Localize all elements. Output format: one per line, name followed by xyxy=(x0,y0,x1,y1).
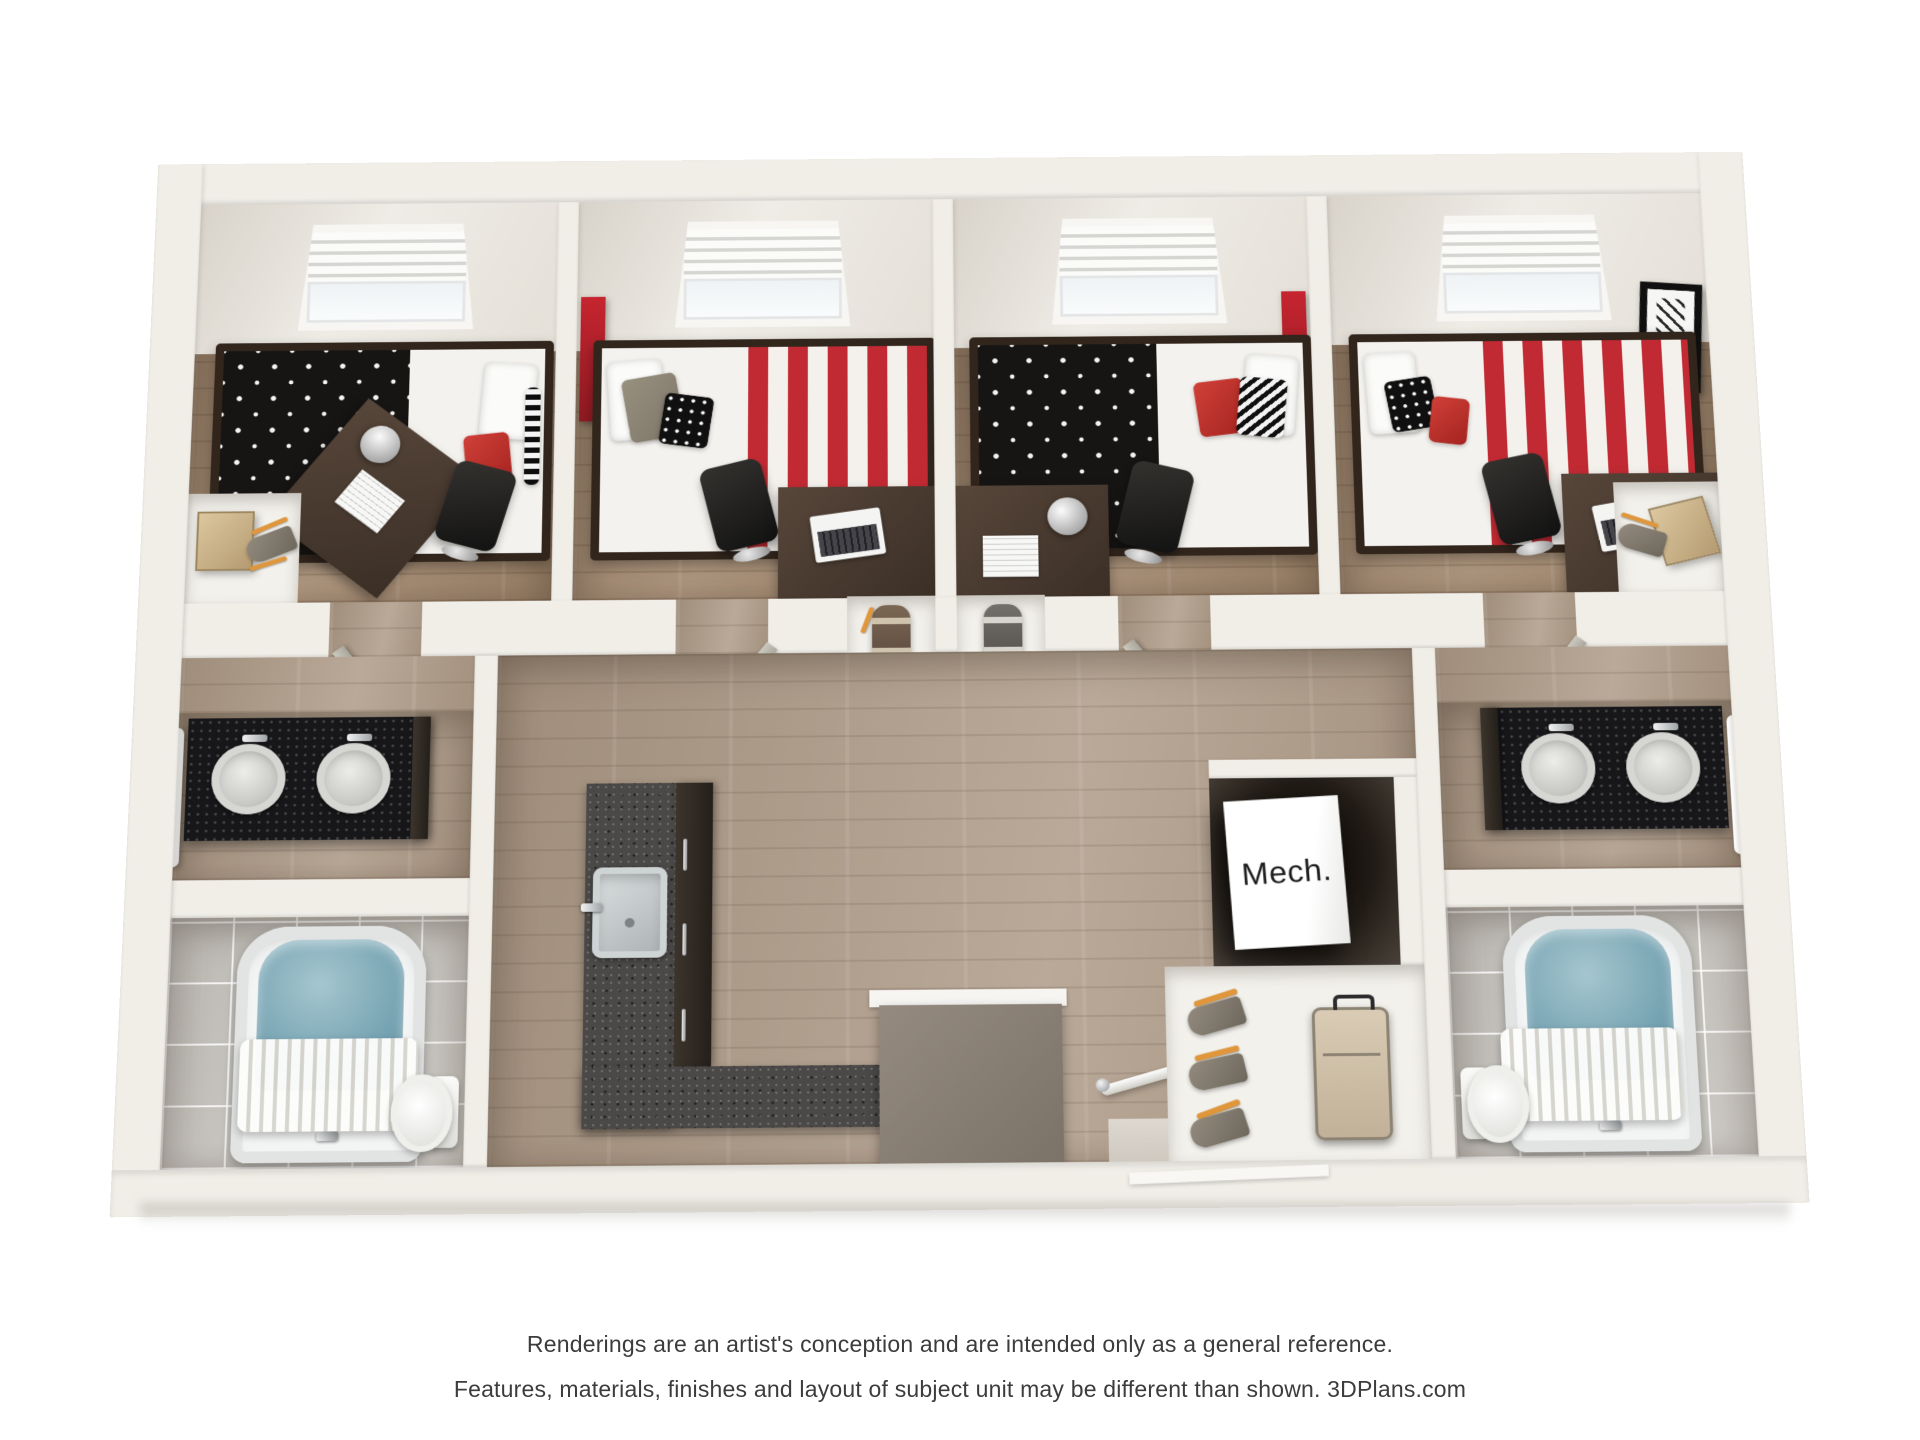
zebra-pillow xyxy=(524,387,541,485)
bedroom-1 xyxy=(184,202,558,603)
vanity-counter-left xyxy=(184,717,431,841)
bedroom-2-desk xyxy=(778,486,936,599)
disclaimer: Renderings are an artist's conception an… xyxy=(0,1322,1920,1412)
bathroom-left xyxy=(160,916,469,1170)
tub-faucet xyxy=(1599,1120,1621,1130)
kitchen-sink xyxy=(592,867,668,958)
window-blinds xyxy=(1441,222,1601,273)
vanity-counter-right xyxy=(1480,706,1729,830)
bedroom-4-closet-nook xyxy=(1613,481,1724,591)
window-blinds xyxy=(684,228,842,279)
desk-lamp xyxy=(352,418,408,470)
bedroom-2-door-opening xyxy=(675,599,768,654)
hallway-left xyxy=(179,656,475,713)
window-blinds xyxy=(1059,225,1218,276)
mech-unit-box: Mech. xyxy=(1223,795,1351,950)
window-glass xyxy=(306,281,465,323)
storage-box xyxy=(195,511,255,571)
dot-pillow xyxy=(658,392,715,449)
cabinet-handle xyxy=(683,839,687,871)
faucet xyxy=(242,735,267,743)
refrigerator xyxy=(879,1004,1064,1164)
laptop xyxy=(809,507,886,563)
mech-closet: Mech. xyxy=(1209,777,1401,966)
bedroom-4 xyxy=(1327,193,1725,594)
faucet xyxy=(1548,724,1574,732)
wall-vanity-bath-right xyxy=(1444,867,1743,907)
bedroom-2-skylight-window xyxy=(675,221,850,328)
sink-left-2 xyxy=(315,743,391,814)
window-glass xyxy=(1060,275,1219,317)
desk-paper xyxy=(334,469,405,533)
sink-right-2 xyxy=(1624,732,1702,803)
faucet xyxy=(1653,723,1679,731)
kitchen-faucet xyxy=(581,903,603,912)
maze-pattern-pillow xyxy=(1236,376,1288,438)
bedroom-4-door-opening xyxy=(1483,592,1578,647)
railing-newel xyxy=(1096,1078,1110,1092)
disclaimer-line1: Renderings are an artist's conception an… xyxy=(0,1322,1920,1367)
bedroom-3-desk xyxy=(955,485,1110,598)
luggage-closet xyxy=(1165,965,1432,1162)
disclaimer-line2: Features, materials, finishes and layout… xyxy=(0,1367,1920,1412)
vanity-room-right xyxy=(1437,700,1741,870)
bedroom-3 xyxy=(953,196,1319,597)
suitcase xyxy=(1312,1007,1394,1141)
floorplan-unit: Mech. xyxy=(110,152,1810,1217)
sink-right-1 xyxy=(1520,733,1597,804)
sink-left-1 xyxy=(210,744,287,815)
wall-bedroom2-3 xyxy=(932,199,956,625)
vanity-cabinet-edge xyxy=(410,717,431,840)
bathroom-right xyxy=(1446,905,1759,1159)
laptop-keyboard xyxy=(817,524,879,557)
cabinet-handle xyxy=(682,1009,686,1042)
bedroom-3-skylight-window xyxy=(1050,218,1227,325)
kitchen-cabinets xyxy=(673,783,713,1067)
red-pillow xyxy=(1428,396,1470,446)
bedroom-1-skylight-window xyxy=(298,224,476,331)
kitchen-counter-bottom xyxy=(581,1065,899,1130)
window-glass xyxy=(684,278,842,320)
desk-lamp xyxy=(1047,497,1088,535)
bedroom-2 xyxy=(572,199,935,600)
cabinet-handle xyxy=(682,923,686,955)
floorplan-3d-view: Mech. xyxy=(110,152,1810,1217)
mech-closet-north-wall xyxy=(1208,758,1416,778)
tub-faucet xyxy=(316,1131,338,1141)
vanity-room-left xyxy=(172,711,473,881)
bedroom-4-skylight-window xyxy=(1432,214,1612,321)
floorplan-ground-shadow xyxy=(140,1203,1790,1225)
mech-label: Mech. xyxy=(1240,852,1333,893)
bedroom-1-closet-nook xyxy=(184,493,301,604)
window-blinds xyxy=(308,231,467,282)
hallway-right xyxy=(1435,645,1731,702)
faucet xyxy=(347,734,372,742)
window-glass xyxy=(1443,272,1603,314)
wall-vanity-bath-left xyxy=(171,878,470,918)
vanity-cabinet-edge xyxy=(1480,708,1503,830)
desk-paper xyxy=(983,535,1039,577)
